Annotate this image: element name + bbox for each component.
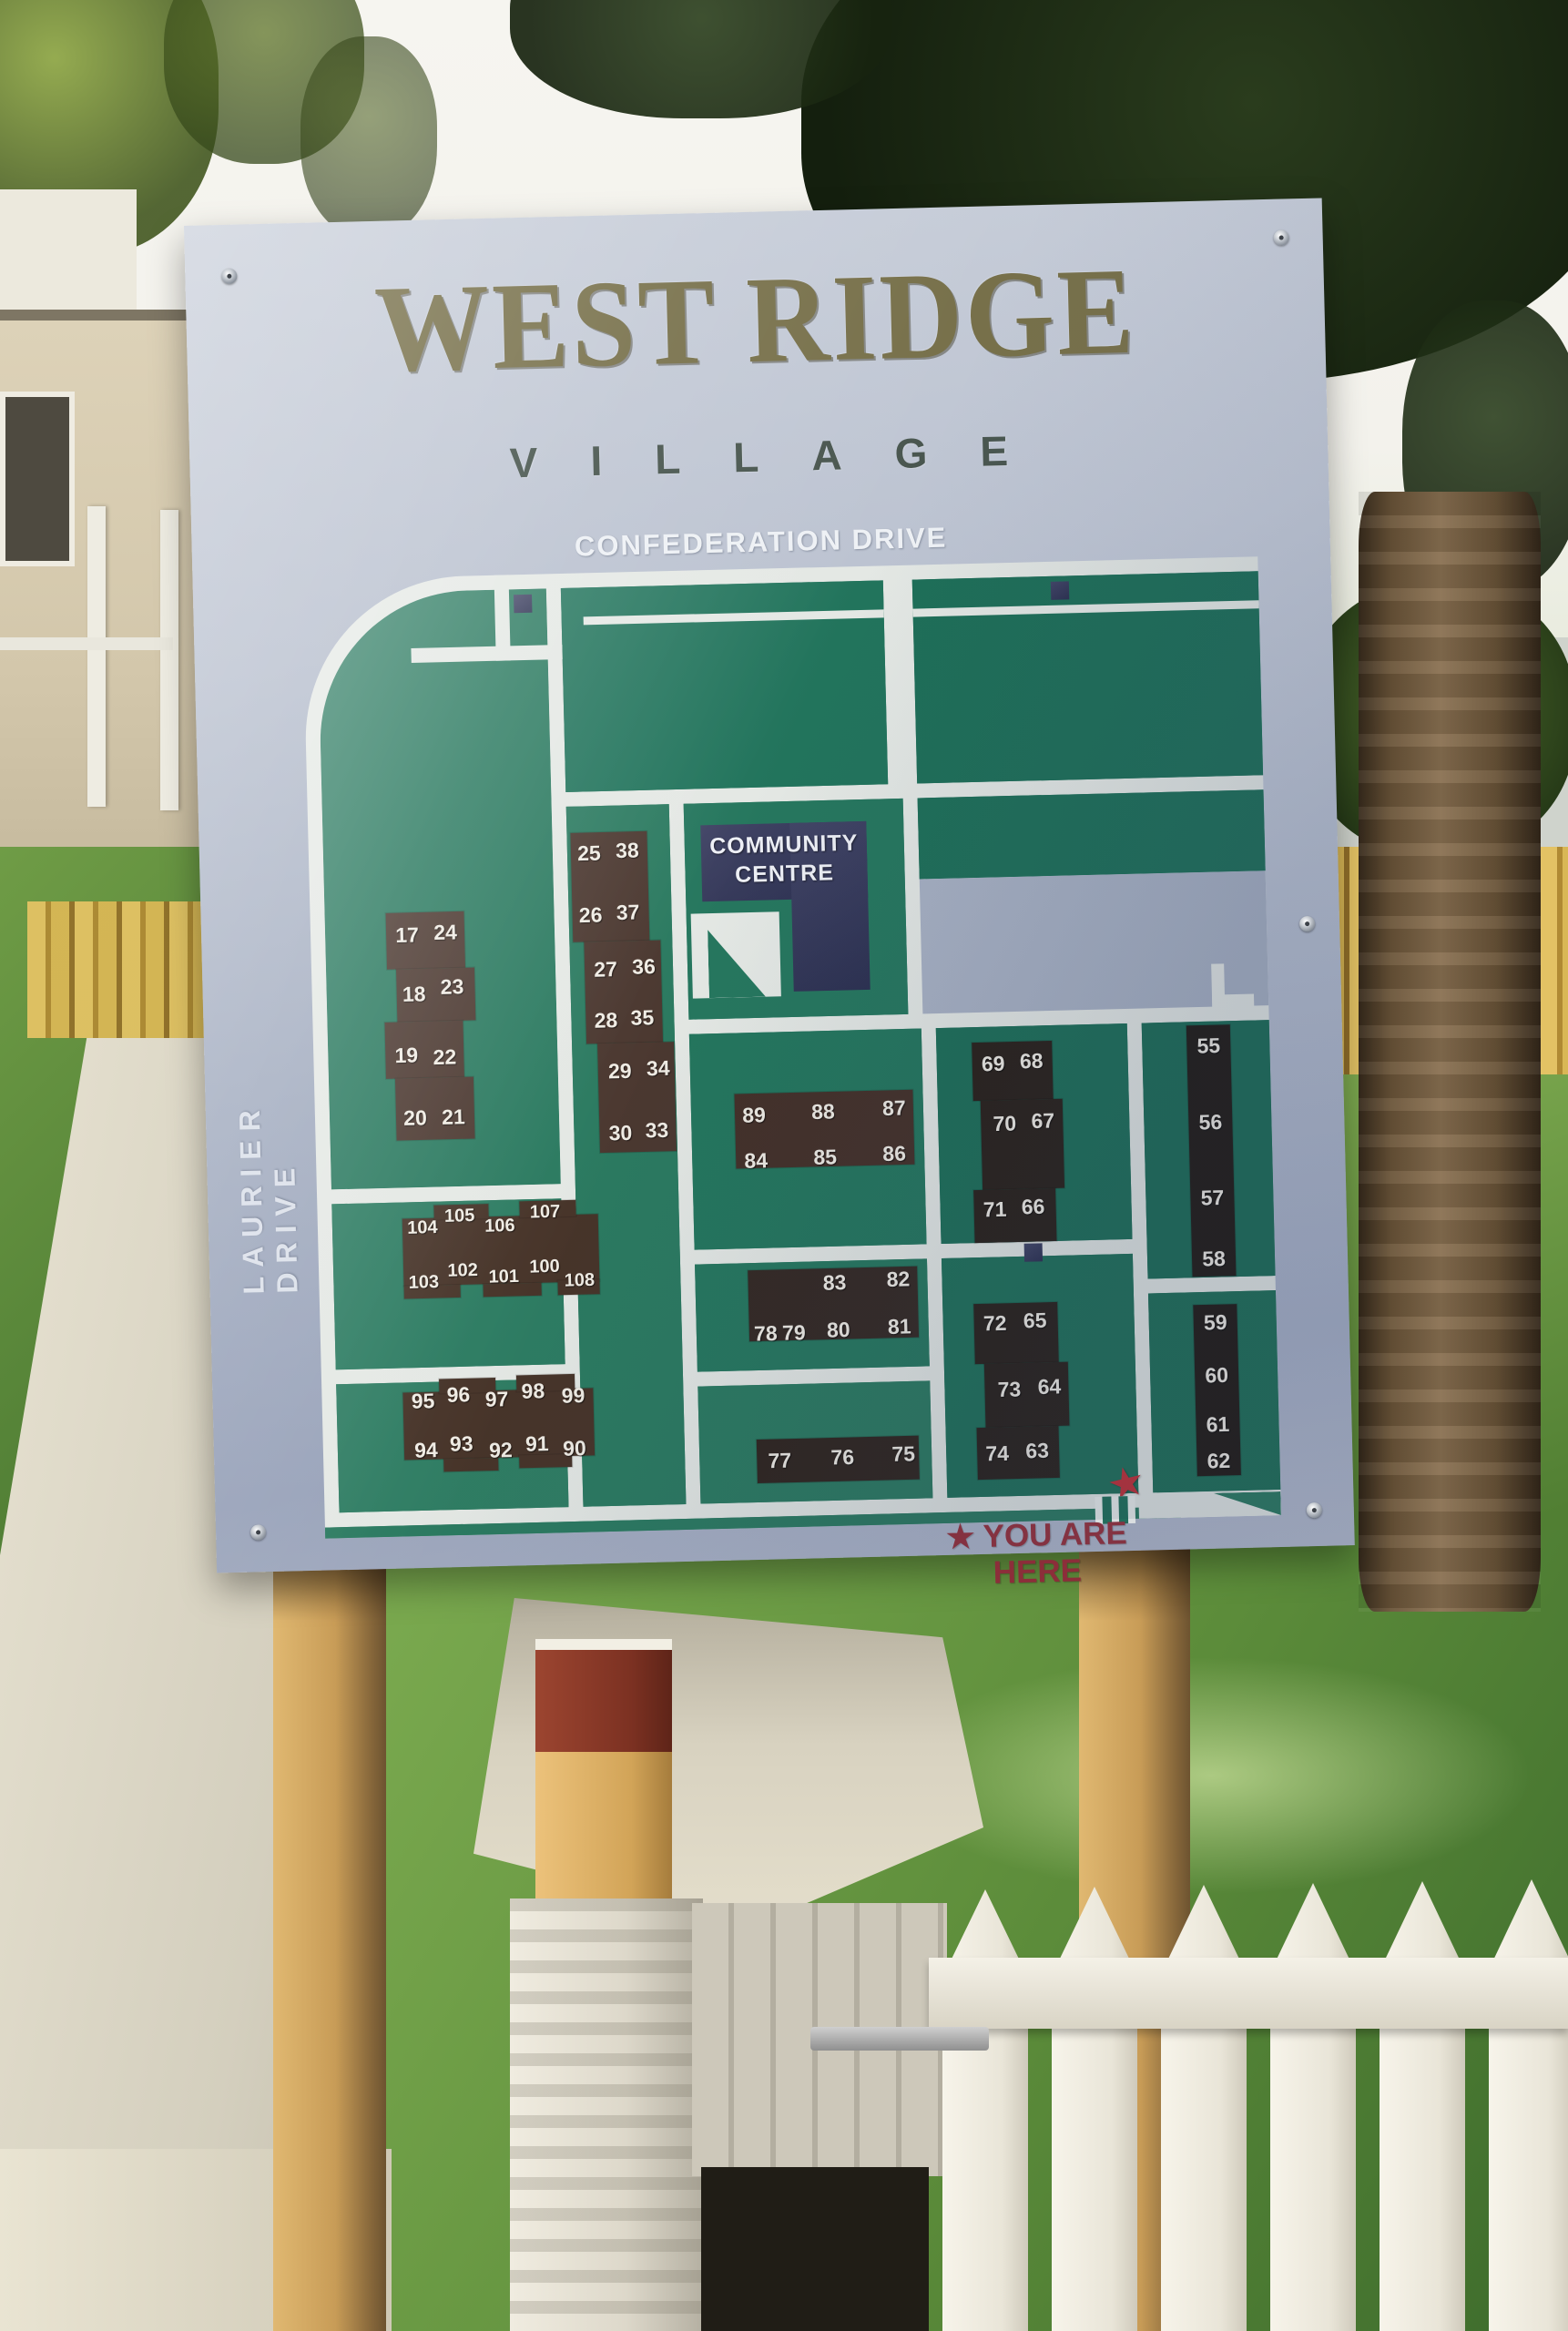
unit-number: 76 bbox=[830, 1445, 854, 1471]
unit-number: 108 bbox=[564, 1270, 595, 1292]
unit-number: 61 bbox=[1206, 1412, 1229, 1438]
unit-number: 81 bbox=[888, 1314, 911, 1339]
unit-number: 93 bbox=[450, 1431, 473, 1457]
unit-number: 72 bbox=[983, 1311, 1007, 1337]
building-block bbox=[1186, 1024, 1237, 1277]
unit-number: 70 bbox=[993, 1111, 1016, 1136]
unit-number: 35 bbox=[630, 1005, 654, 1031]
unit-number: 102 bbox=[447, 1260, 478, 1282]
unit-number: 22 bbox=[433, 1044, 456, 1070]
porch-post bbox=[160, 510, 178, 810]
unit-number: 33 bbox=[645, 1118, 668, 1144]
house-window bbox=[0, 392, 75, 566]
unit-number: 98 bbox=[521, 1379, 545, 1404]
unit-number: 27 bbox=[594, 957, 617, 982]
unit-number: 77 bbox=[768, 1449, 791, 1474]
unit-number: 106 bbox=[484, 1216, 515, 1237]
unit-number: 94 bbox=[414, 1438, 438, 1463]
map-structure-square bbox=[514, 595, 532, 613]
unit-number: 90 bbox=[563, 1436, 586, 1461]
unit-number: 97 bbox=[484, 1387, 508, 1412]
unit-number: 26 bbox=[579, 903, 603, 929]
gate-latch bbox=[810, 2027, 989, 2051]
unit-number: 91 bbox=[525, 1431, 549, 1457]
unit-number: 23 bbox=[440, 974, 463, 1000]
unit-number: 101 bbox=[488, 1267, 519, 1288]
community-centre-label-line1: COMMUNITY bbox=[709, 830, 859, 860]
fence-picket bbox=[942, 1889, 1028, 2331]
unit-number: 74 bbox=[985, 1441, 1009, 1467]
unit-number: 36 bbox=[632, 954, 656, 980]
unit-number: 79 bbox=[782, 1320, 806, 1346]
unit-number: 69 bbox=[982, 1052, 1005, 1077]
unit-number: 78 bbox=[754, 1321, 778, 1347]
porch-railing bbox=[0, 637, 173, 650]
unit-number: 62 bbox=[1207, 1449, 1230, 1474]
unit-number: 80 bbox=[827, 1318, 850, 1343]
unit-number: 75 bbox=[891, 1441, 915, 1467]
map-structure-square bbox=[1024, 1243, 1043, 1261]
unit-number: 24 bbox=[433, 920, 457, 945]
unit-number: 100 bbox=[529, 1257, 560, 1278]
unit-number: 58 bbox=[1202, 1247, 1226, 1272]
unit-number: 20 bbox=[403, 1105, 427, 1131]
unit-number: 25 bbox=[577, 841, 601, 867]
shadow-gap bbox=[701, 2167, 929, 2331]
sunlight-patch bbox=[892, 1657, 1530, 1894]
tree-trunk bbox=[1359, 492, 1541, 1612]
fence-picket bbox=[1161, 1885, 1247, 2331]
unit-number: 66 bbox=[1021, 1195, 1044, 1220]
unit-number: 68 bbox=[1020, 1049, 1044, 1074]
fence-picket bbox=[1052, 1887, 1137, 2331]
unit-number: 57 bbox=[1200, 1186, 1224, 1211]
map-parcel bbox=[918, 789, 1266, 879]
unit-number: 71 bbox=[983, 1197, 1007, 1223]
unit-number: 105 bbox=[444, 1206, 475, 1227]
west-ridge-village-map-sign: WEST RIDGE VILLAGE CONFEDERATION DRIVE L… bbox=[184, 198, 1355, 1573]
you-are-here-label: ★ YOU ARE HERE bbox=[927, 1515, 1147, 1593]
unit-number: 86 bbox=[882, 1141, 906, 1166]
unit-number: 87 bbox=[882, 1095, 906, 1121]
unit-number: 92 bbox=[489, 1438, 513, 1463]
you-are-here-star-glyph: ★ bbox=[946, 1519, 975, 1555]
unit-number: 67 bbox=[1031, 1108, 1054, 1134]
fence-post-body bbox=[535, 1752, 672, 1916]
community-centre-label-line2: CENTRE bbox=[735, 860, 834, 889]
unit-number: 104 bbox=[407, 1217, 438, 1239]
unit-number: 103 bbox=[408, 1272, 439, 1294]
unit-number: 29 bbox=[608, 1059, 632, 1084]
unit-number: 21 bbox=[442, 1104, 465, 1130]
unit-number: 28 bbox=[594, 1008, 617, 1033]
fence-post-red-top bbox=[535, 1650, 672, 1752]
unit-number: 89 bbox=[742, 1103, 766, 1128]
unit-number: 30 bbox=[608, 1121, 632, 1146]
photo-of-map-sign: { "sign": { "title": "WEST RIDGE", "subt… bbox=[0, 0, 1568, 2331]
fence-picket bbox=[1270, 1883, 1356, 2331]
unit-number: 88 bbox=[811, 1099, 835, 1125]
fence-picket bbox=[1489, 1879, 1568, 2331]
map-structure-square bbox=[1051, 581, 1069, 599]
unit-number: 60 bbox=[1205, 1363, 1228, 1389]
house-dormer bbox=[0, 189, 137, 326]
unit-number: 107 bbox=[530, 1202, 561, 1224]
unit-number: 84 bbox=[744, 1148, 768, 1174]
unit-number: 65 bbox=[1023, 1308, 1047, 1334]
unit-number: 64 bbox=[1037, 1374, 1061, 1400]
unit-number: 73 bbox=[997, 1377, 1021, 1402]
you-are-here-line2: HERE bbox=[993, 1552, 1082, 1590]
porch-post bbox=[87, 506, 106, 807]
unit-number: 17 bbox=[395, 922, 419, 948]
unit-number: 83 bbox=[822, 1270, 846, 1296]
unit-number: 56 bbox=[1198, 1110, 1222, 1135]
unit-number: 19 bbox=[394, 1043, 418, 1068]
unit-number: 99 bbox=[561, 1383, 585, 1409]
road bbox=[1212, 994, 1254, 1008]
sign-post-left bbox=[273, 1539, 386, 2331]
unit-number: 38 bbox=[616, 838, 639, 863]
unit-number: 85 bbox=[813, 1145, 837, 1170]
unit-number: 82 bbox=[886, 1267, 910, 1292]
unit-number: 37 bbox=[616, 901, 639, 926]
you-are-here-line1: YOU ARE bbox=[983, 1515, 1127, 1554]
unit-number: 59 bbox=[1204, 1310, 1227, 1336]
unit-number: 95 bbox=[411, 1389, 434, 1414]
unit-number: 34 bbox=[647, 1056, 670, 1082]
fence-picket bbox=[1380, 1881, 1465, 2331]
tree-foliage-topleft bbox=[300, 36, 437, 237]
fence-rail bbox=[929, 1958, 1568, 2029]
unit-number: 18 bbox=[402, 982, 426, 1007]
unit-number: 55 bbox=[1196, 1033, 1220, 1059]
unit-number: 96 bbox=[446, 1382, 470, 1408]
gate-post-weathered bbox=[510, 1898, 703, 2331]
unit-number: 63 bbox=[1025, 1439, 1049, 1464]
